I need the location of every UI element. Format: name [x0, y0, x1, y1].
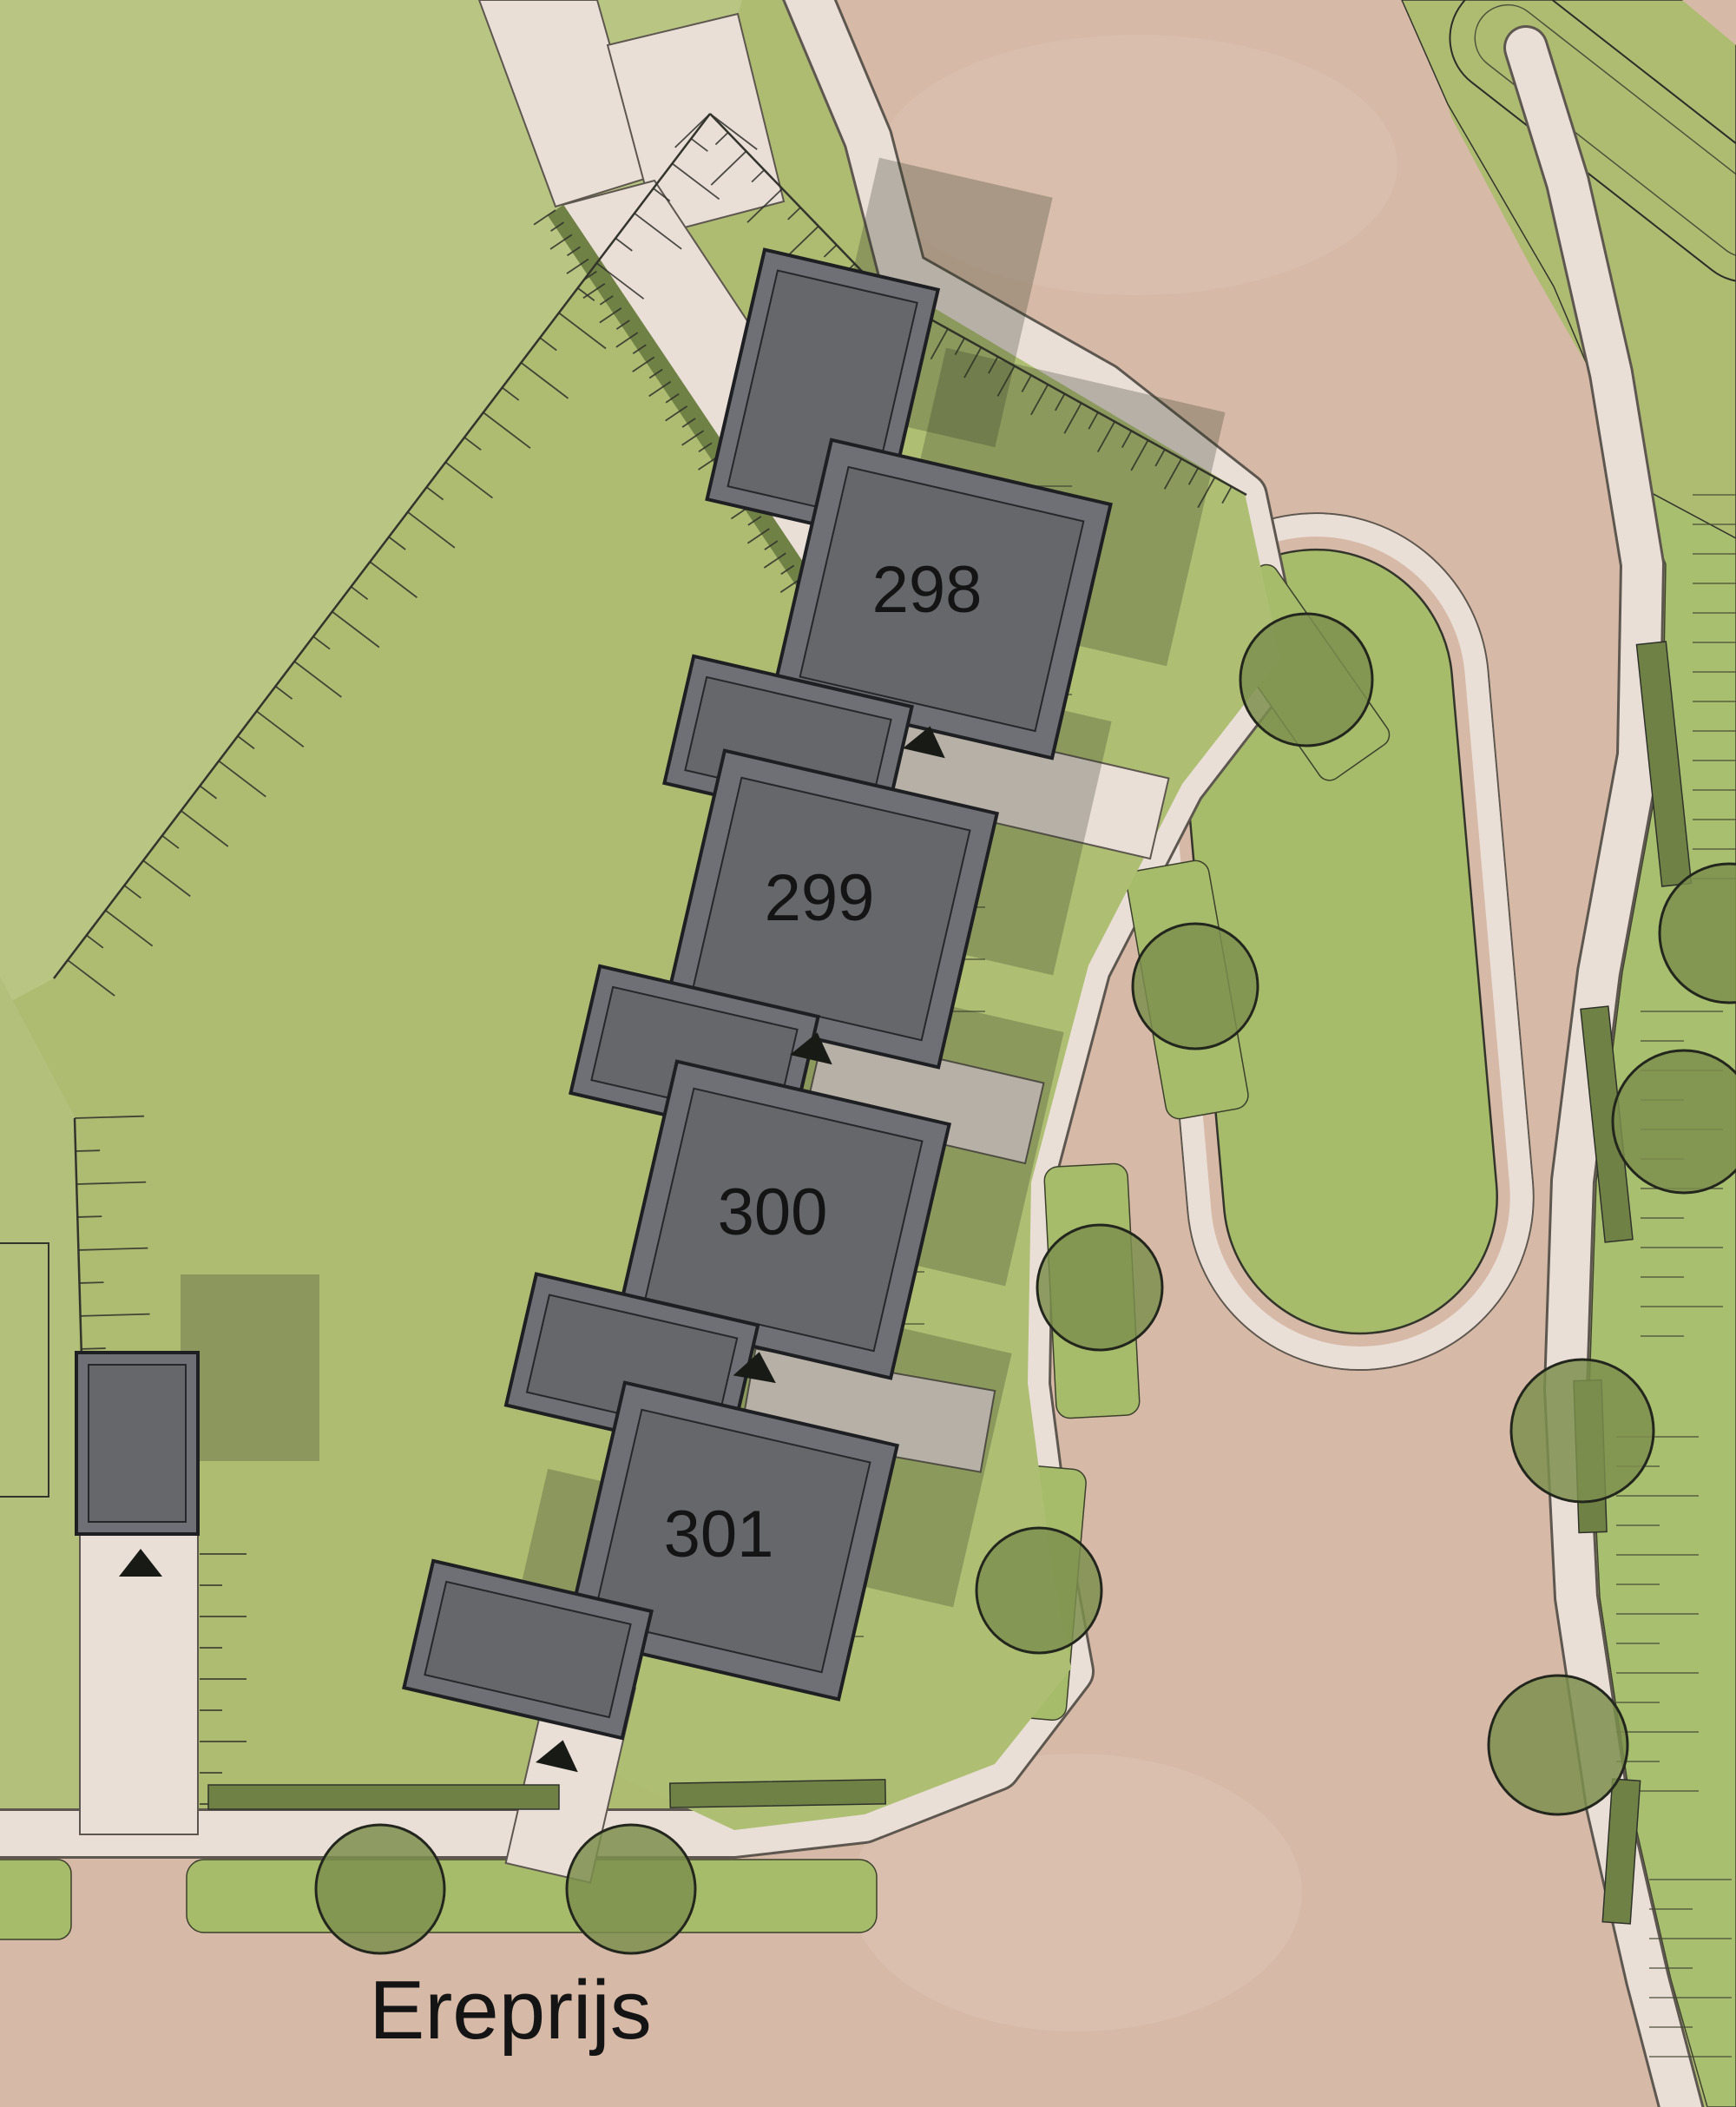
site-plan: 298 299 300 301 Ereprijs [0, 0, 1736, 2107]
building-label-299: 299 [765, 861, 875, 935]
verge-strip [0, 1860, 71, 1939]
tree-icon [1511, 1360, 1654, 1502]
building-label-301: 301 [664, 1498, 774, 1571]
tree-icon [1037, 1225, 1162, 1350]
building-label-300: 300 [718, 1175, 828, 1249]
tree-icon [1133, 924, 1258, 1049]
outbuilding [76, 1353, 198, 1534]
driveway [80, 1535, 198, 1834]
tree-icon [976, 1528, 1101, 1653]
street-label: Ereprijs [369, 1964, 651, 2057]
tree-icon [567, 1825, 695, 1953]
tree-icon [1489, 1676, 1627, 1814]
hedge [670, 1780, 885, 1807]
tree-icon [1240, 614, 1372, 746]
hedge [208, 1785, 559, 1809]
verge-strip [187, 1860, 877, 1933]
tree-icon [316, 1825, 444, 1953]
building-label-298: 298 [872, 553, 983, 627]
